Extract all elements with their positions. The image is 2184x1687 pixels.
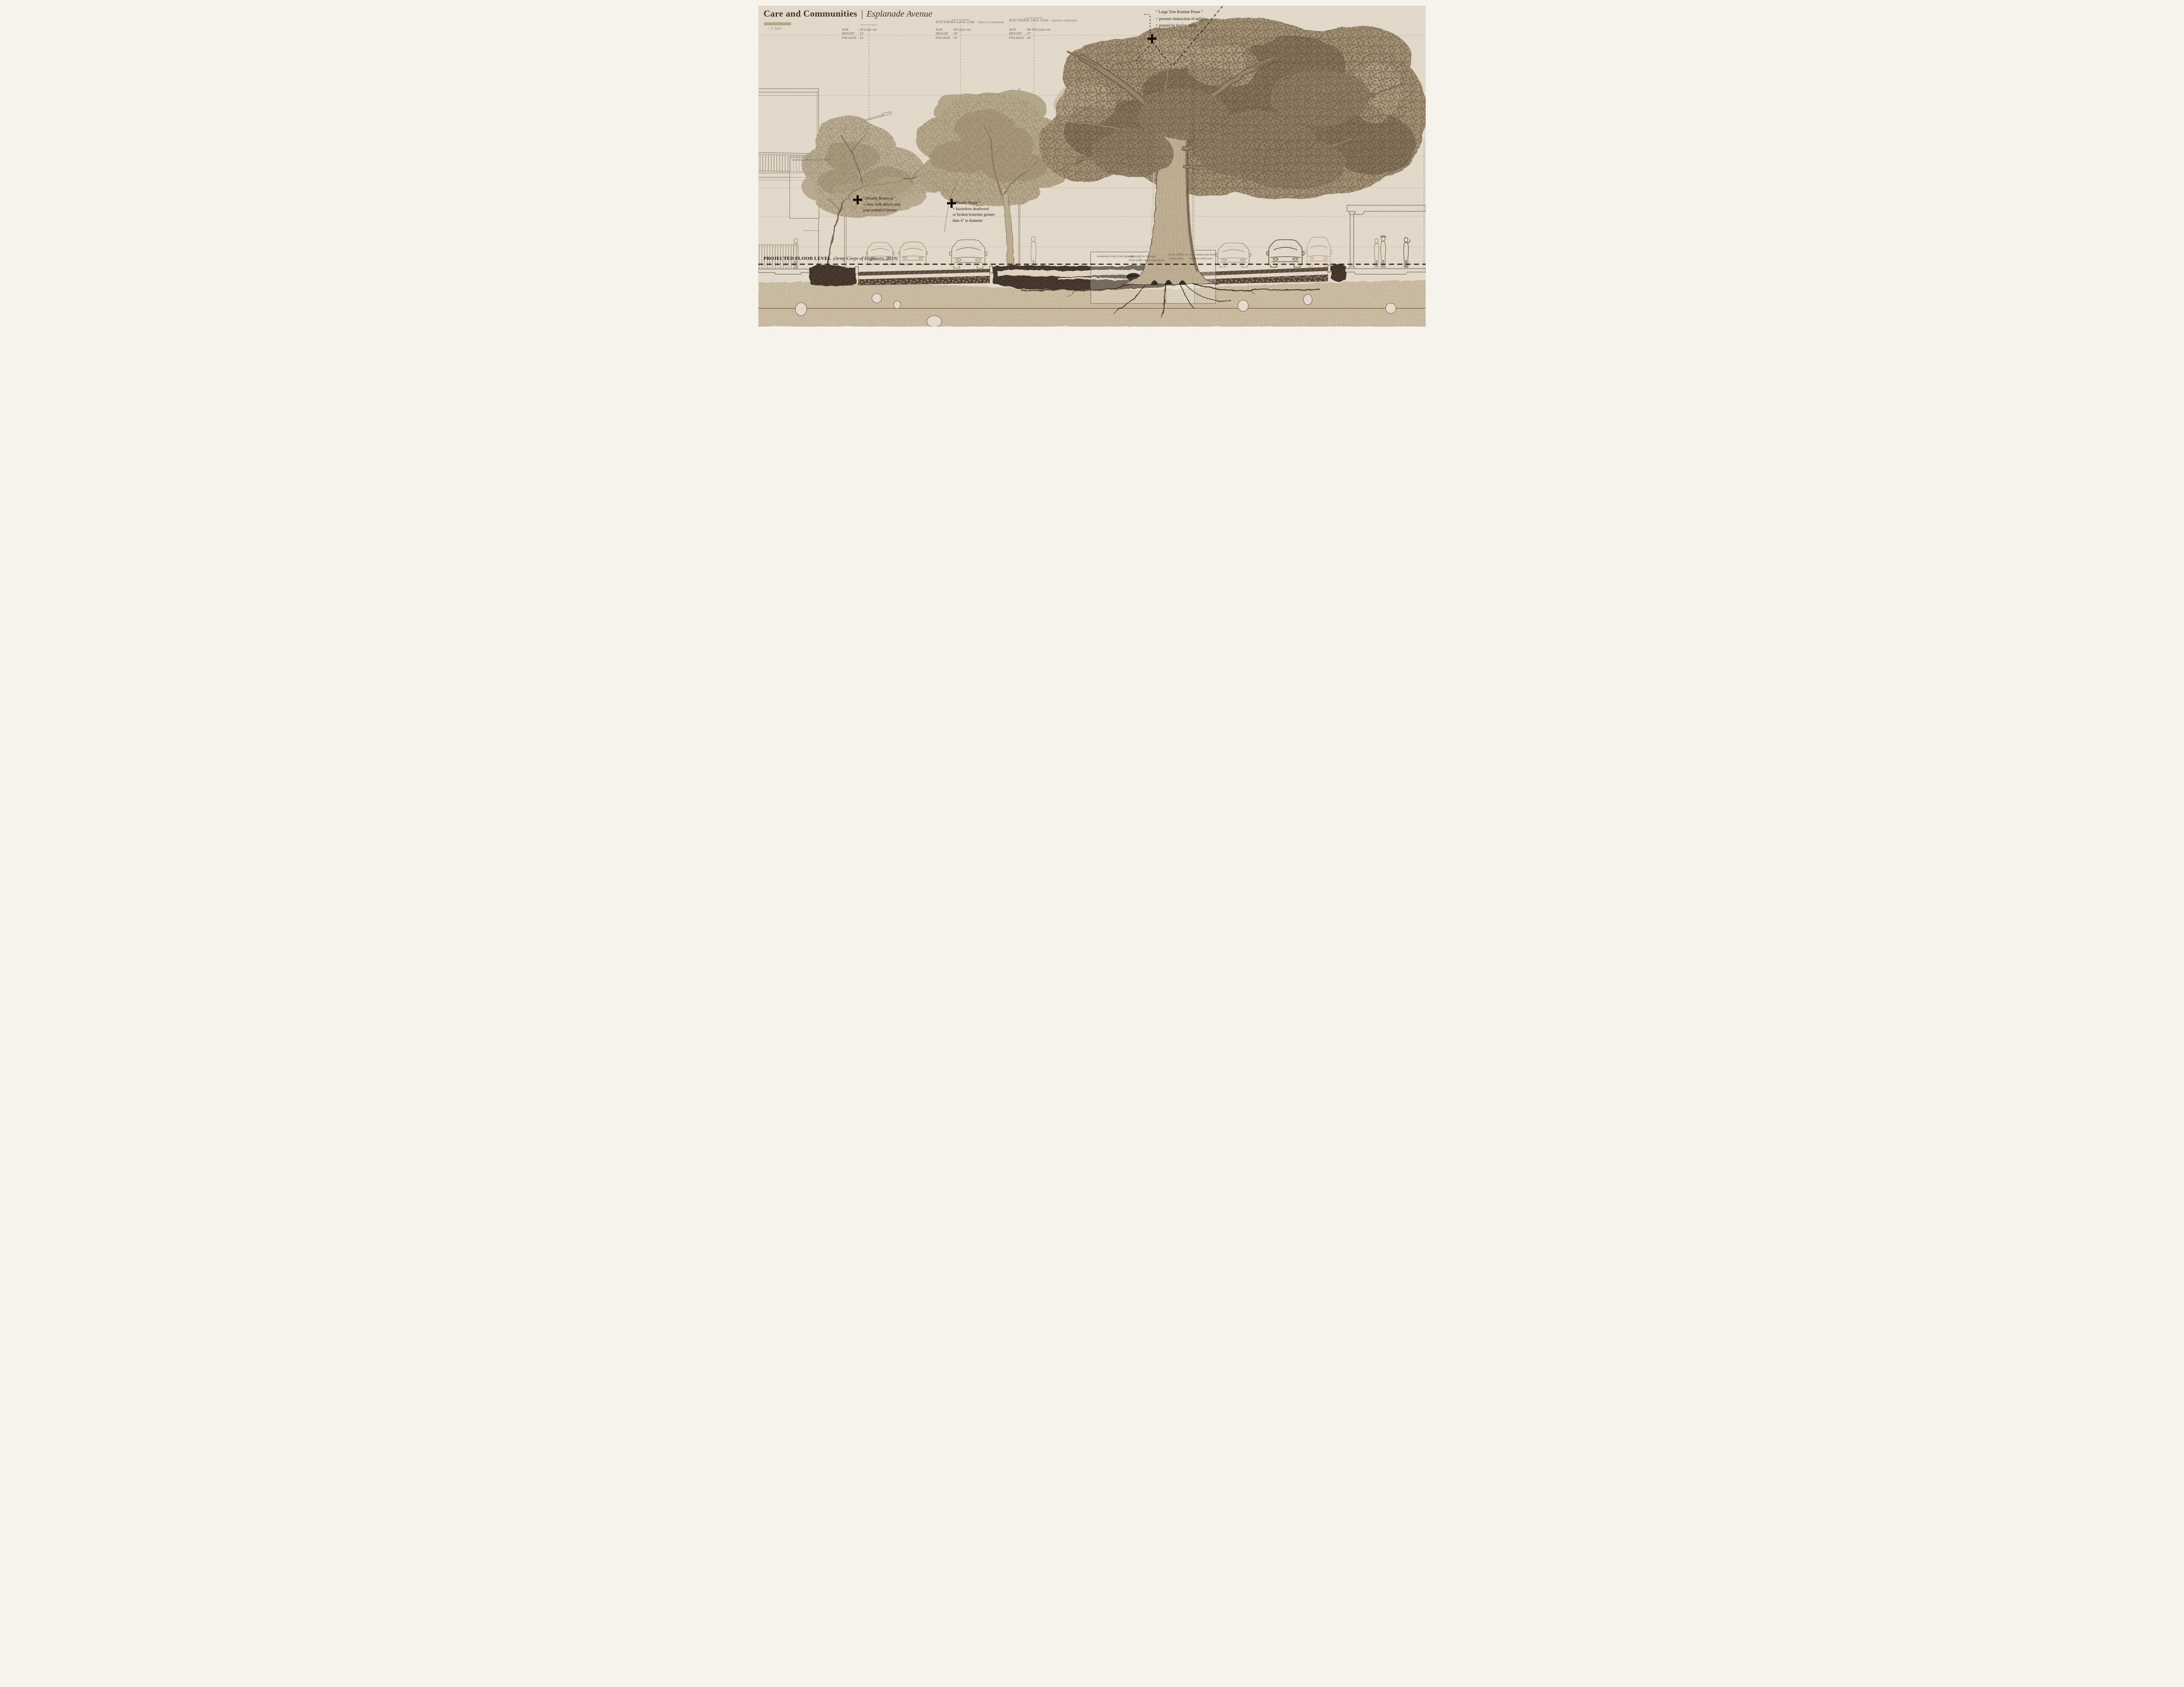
note-line: retain water [1168,257,1188,261]
spec-row-height: HEIGHT: 30' [936,31,971,35]
canopy-growth-label: Limited Canopy Growth Space [792,159,831,162]
title-street: Esplanade Avenue [867,9,933,19]
foliage-value: : 22' [858,36,864,40]
section-drawing-sheet: Care and Communities|Esplanade Avenue - … [752,0,1432,335]
tree-spec-table-2: AGE: 20 years est. HEIGHT: 30' FOLIAGE: … [936,28,971,40]
flood-level-source: (Army Corps of Engineers, 2019) [833,256,898,261]
page-title: Care and Communities|Esplanade Avenue [764,8,932,19]
spec-row-age: AGE: 20 years est. [842,28,878,31]
plus-marker-icon [1147,34,1157,43]
annotation-line: + pruned by bucket truck [1156,22,1209,29]
tree-spec-table-3: AGE: 80-100 years est. HEIGHT: 47' FOLIA… [1009,28,1051,40]
note-line: from traffic and maintenance [1129,259,1165,262]
height-value: : 25' [858,31,864,35]
height-value: : 30' [952,31,958,35]
annotation-heading: “ Priority Removal ” [863,196,901,202]
annotation-routine-prune: “ Large Tree Routine Prune ” + prevent o… [1156,9,1209,29]
tree-spec-table-1: AGE: 20 years est. HEIGHT: 25' FOLIAGE: … [842,28,878,40]
note-line: lower ability to [1168,253,1188,257]
annotation-priority-removal: “ Priority Removal ” + trees with defect… [863,196,901,214]
annotation-line: + trees with defects that [863,202,901,208]
plus-marker-icon [853,195,862,204]
annotation-line: + hazardous deadwood [953,206,995,212]
root-note-retain: lower ability to retain water [1168,253,1188,261]
age-label: AGE [842,28,858,31]
height-value: : 47' [1025,31,1031,35]
annotation-line: than 4" in diameter [953,218,995,224]
species-latin-name: Quercus virginiana [978,21,1003,24]
foliage-label: FOLIAGE [1009,36,1025,40]
age-value: : 20 years est. [952,28,971,31]
scale-bar [764,22,791,25]
scale-label: - 5 feet - [768,27,784,31]
height-label: HEIGHT [842,31,858,35]
note-line: vulnerable to damage [1129,255,1165,259]
section-artwork [752,0,1432,335]
age-value: : 80-100 years est. [1025,28,1051,31]
foliage-label: FOLIAGE [842,36,858,40]
paper-grain [758,6,1426,327]
root-note-compaction: soil compaction from frequent urban use [1189,253,1216,261]
annotation-heading: “ Large Tree Routine Prune ” [1156,9,1209,16]
species-label-2: SOUTHERN LIVE OAK - Quercus virginiana [936,20,1003,24]
species-latin-name: Quercus virginiana [1052,19,1077,22]
title-main: Care and Communities [764,8,857,19]
spec-row-foliage: FOLIAGE: 64' [1009,36,1051,40]
height-label: HEIGHT [1009,31,1025,35]
foliage-value: : 25' [952,36,958,40]
title-divider: | [861,8,863,20]
spec-row-foliage: FOLIAGE: 25' [936,36,971,40]
spec-row-height: HEIGHT: 25' [842,31,878,35]
spec-row-height: HEIGHT: 47' [1009,31,1051,35]
note-line: frequent urban use [1189,257,1216,261]
spec-row-age: AGE: 80-100 years est. [1009,28,1051,31]
spec-row-age: AGE: 20 years est. [936,28,971,31]
species-common-name: SOUTHERN LIVE OAK [936,20,975,24]
species-label-3: SOUTHERN LIVE OAK - Quercus virginiana [1009,18,1077,22]
species-common-name: SOUTHERN LIVE OAK [1009,18,1048,22]
note-line: soil compaction from [1189,253,1216,257]
annotation-line: or broken branches greater [953,212,995,218]
spec-row-foliage: FOLIAGE: 22' [842,36,878,40]
flood-level-label: PROJECTED FLOOD LEVEL(Army Corps of Engi… [764,256,898,261]
foliage-value: : 64' [1025,36,1031,40]
annotation-line: + prevent obstruction of utilities. [1156,16,1209,23]
species-separator: - [1049,18,1051,22]
age-label: AGE [1009,28,1025,31]
annotation-priority-prune: “ Priority Prune ” + hazardous deadwood … [953,200,995,224]
height-label: HEIGHT [936,31,952,35]
root-note-vulnerable: vulnerable to damage from traffic and ma… [1129,255,1165,263]
species-separator: - [976,20,977,24]
age-value: : 20 years est. [858,28,878,31]
annotation-heading: “ Priority Prune ” [953,200,995,206]
foliage-label: FOLIAGE [936,36,952,40]
annotation-line: pose potential threats [863,207,901,214]
flood-level-caps: PROJECTED FLOOD LEVEL [764,256,831,261]
age-label: AGE [936,28,952,31]
